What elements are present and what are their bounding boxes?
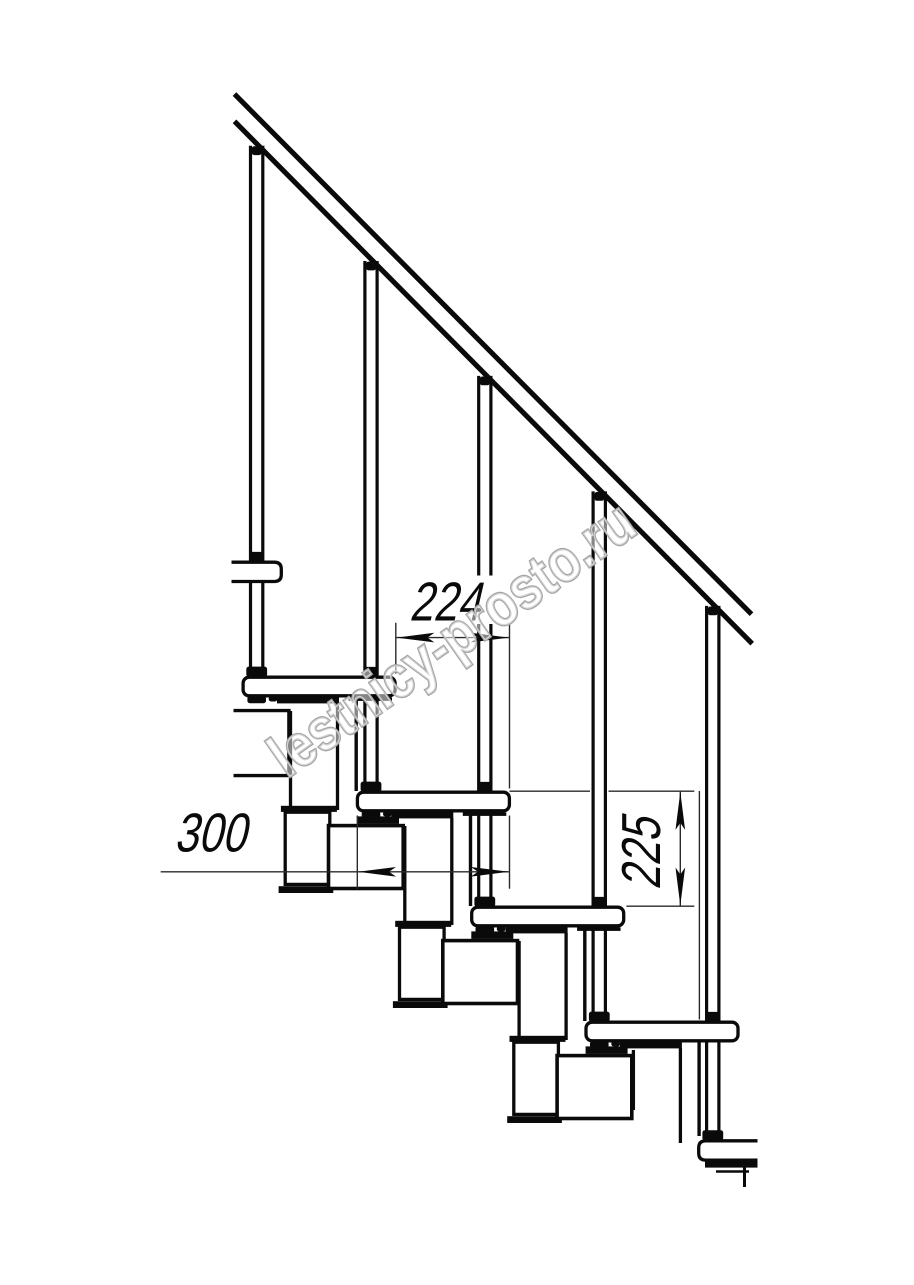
- svg-text:300: 300: [171, 802, 257, 863]
- svg-text:225: 225: [611, 807, 672, 893]
